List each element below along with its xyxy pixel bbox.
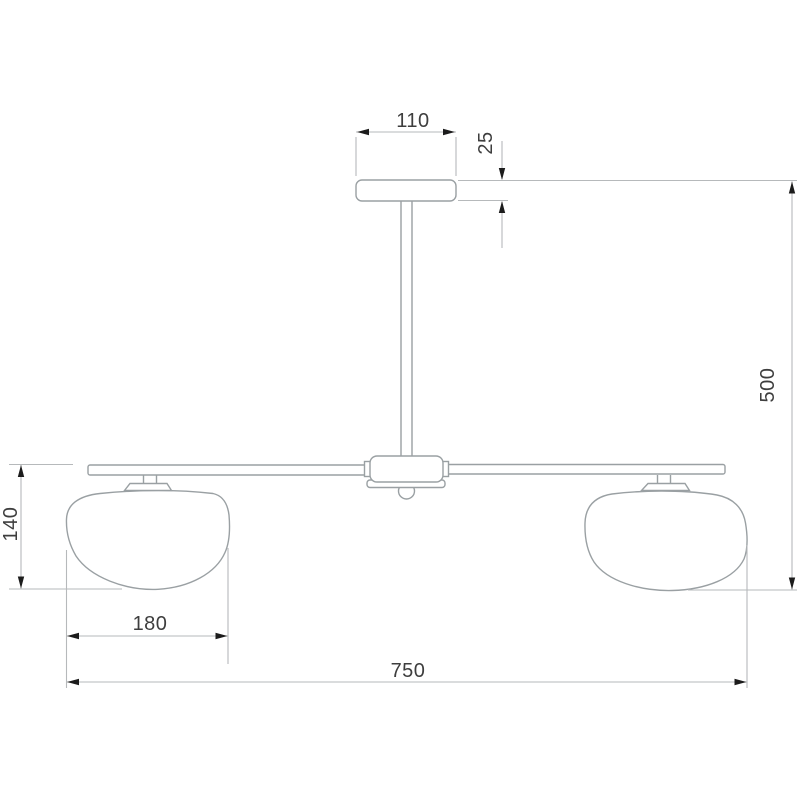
arrowhead-right-icon — [443, 129, 455, 135]
left-shade — [66, 491, 229, 590]
lamp-fixture — [66, 180, 747, 591]
down-rod — [401, 196, 412, 458]
arrowhead-right-icon — [735, 679, 747, 685]
lamp-dimension-drawing: 110 25 500 140 180 — [0, 0, 800, 800]
dim-label-shade-height: 140 — [0, 507, 22, 542]
right-shade-holder — [642, 484, 690, 491]
dim-label-overall-width: 750 — [391, 660, 426, 682]
drawing-canvas: 110 25 500 140 180 — [0, 0, 800, 800]
arrowhead-left-icon — [357, 129, 369, 135]
arrowhead-left-icon — [67, 679, 79, 685]
dim-canopy-thickness: 25 — [458, 131, 797, 248]
left-arm — [88, 465, 366, 475]
dim-label-shade-width: 180 — [133, 613, 168, 635]
arrowhead-right-icon — [216, 633, 228, 639]
dim-canopy-width: 110 — [356, 110, 456, 176]
center-hub — [370, 456, 443, 482]
left-shade-holder — [125, 484, 172, 491]
arrowhead-down-icon — [789, 578, 795, 590]
dim-label-overall-height: 500 — [757, 368, 779, 403]
dim-label-canopy-thickness: 25 — [475, 131, 497, 154]
arrowhead-up-icon — [18, 465, 24, 477]
right-shade — [585, 491, 747, 590]
dim-label-canopy-width: 110 — [396, 110, 429, 132]
left-shade-stem — [144, 475, 157, 484]
ceiling-canopy — [356, 180, 456, 201]
arrowhead-down-icon — [18, 577, 24, 589]
arrowhead-up-icon — [499, 201, 505, 213]
arrowhead-up-icon — [789, 182, 795, 194]
extension-lines — [356, 137, 456, 176]
arrowhead-left-icon — [67, 633, 79, 639]
arrowhead-down-icon — [499, 168, 505, 180]
right-arm — [447, 465, 725, 475]
right-shade-stem — [658, 475, 671, 484]
